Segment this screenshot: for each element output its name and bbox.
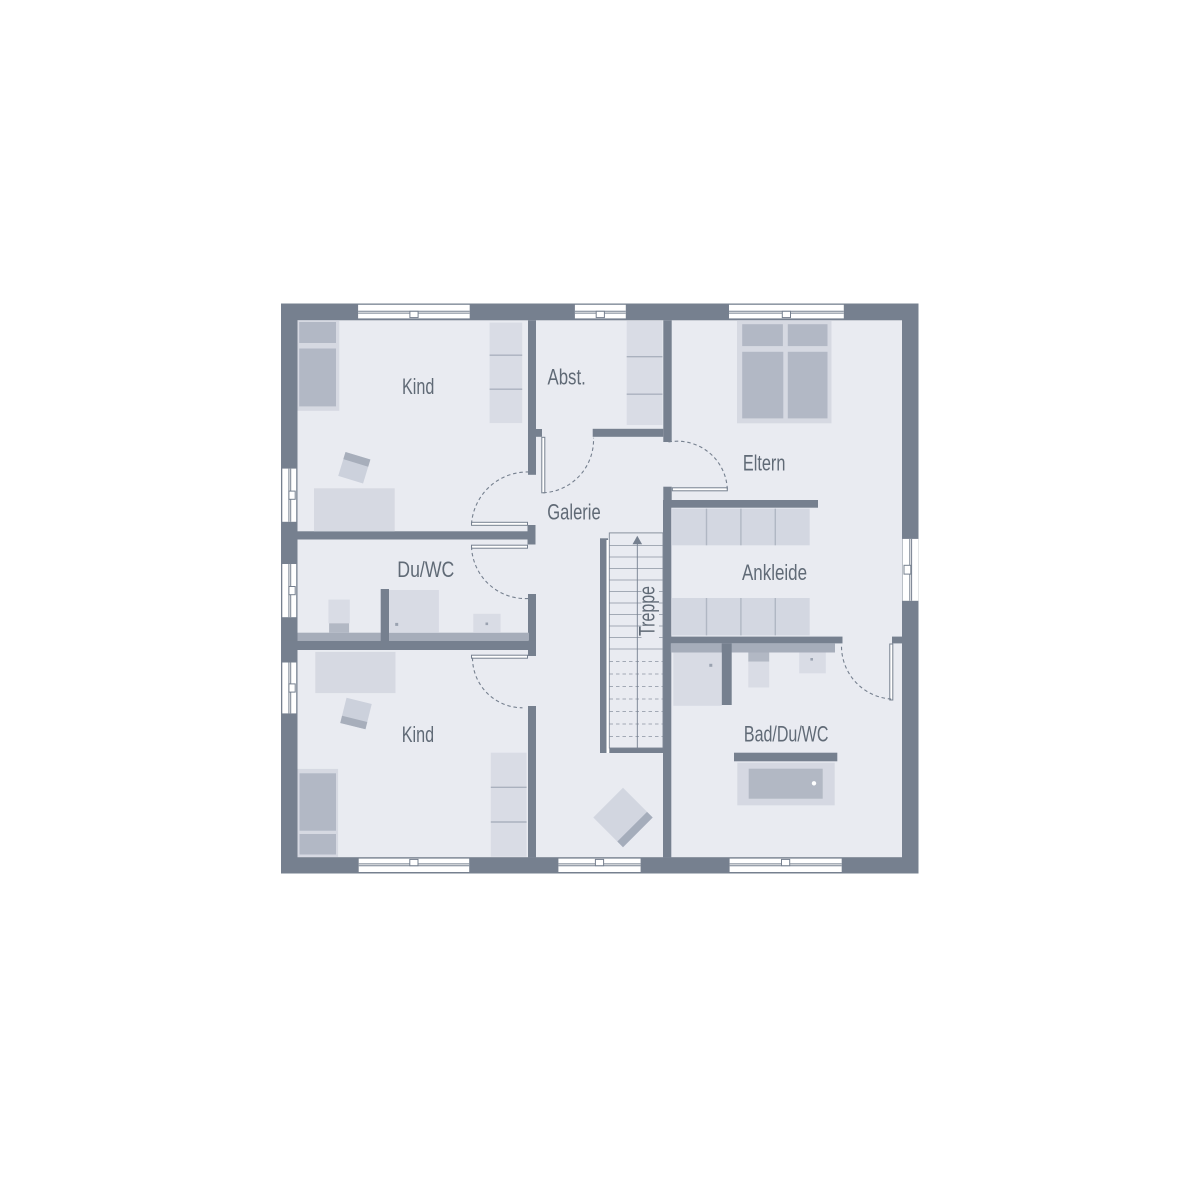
svg-text:Galerie: Galerie	[547, 500, 600, 525]
svg-text:Kind: Kind	[402, 374, 434, 399]
svg-text:Abst.: Abst.	[548, 365, 586, 390]
svg-text:Eltern: Eltern	[743, 450, 786, 475]
svg-text:Ankleide: Ankleide	[742, 560, 807, 585]
svg-text:Du/WC: Du/WC	[397, 557, 454, 582]
svg-text:Bad/Du/WC: Bad/Du/WC	[744, 721, 829, 746]
svg-text:Kind: Kind	[402, 722, 434, 747]
svg-text:Treppe: Treppe	[634, 586, 659, 636]
